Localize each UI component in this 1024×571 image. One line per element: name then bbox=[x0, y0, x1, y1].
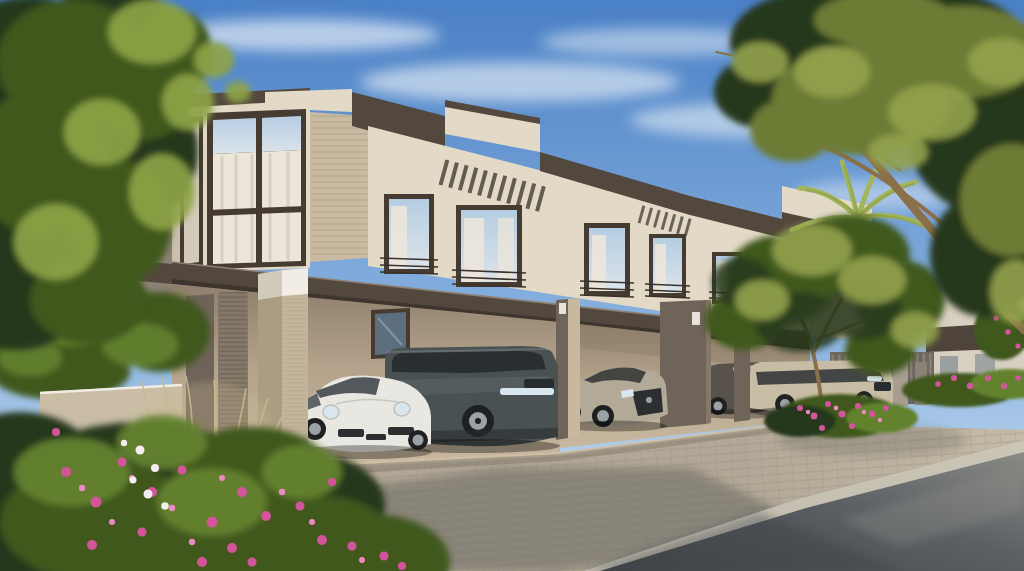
downlight bbox=[692, 312, 700, 325]
bumper-intake bbox=[388, 427, 414, 435]
grille bbox=[874, 382, 891, 391]
corner-window bbox=[180, 109, 306, 269]
bumper-intake bbox=[338, 429, 364, 437]
license-plate-recess bbox=[366, 434, 386, 440]
window bbox=[645, 234, 690, 298]
window bbox=[580, 223, 634, 297]
window bbox=[452, 205, 526, 287]
pillar-cap bbox=[282, 268, 308, 296]
pillar-cap-side bbox=[258, 270, 282, 300]
headlight bbox=[867, 376, 882, 381]
parapet-a bbox=[265, 89, 352, 112]
bay-divider-pillar bbox=[556, 298, 580, 440]
rendering-canvas: Architectural rendering of a modern two-… bbox=[0, 0, 1024, 571]
window bbox=[380, 194, 438, 274]
headlight-bar bbox=[500, 388, 554, 395]
window-band bbox=[392, 351, 546, 373]
star-badge bbox=[646, 397, 652, 403]
downlight bbox=[559, 303, 566, 314]
grille bbox=[524, 379, 554, 388]
townhouse-rendering: Architectural rendering of a modern two-… bbox=[0, 0, 1024, 571]
